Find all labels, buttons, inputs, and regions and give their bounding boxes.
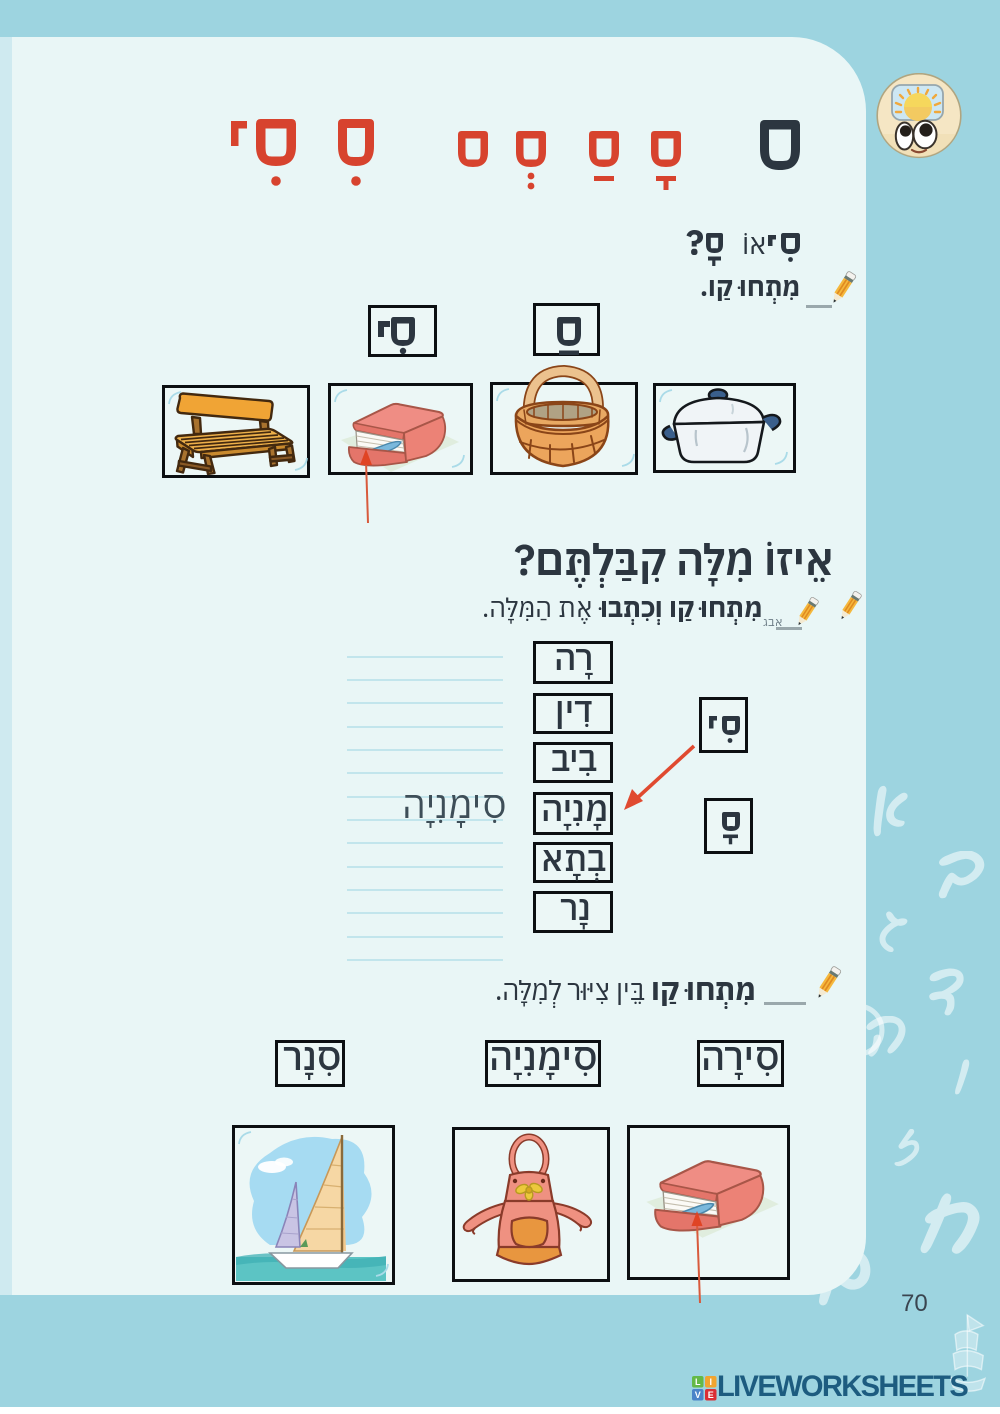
svg-text:E: E <box>708 1390 714 1400</box>
svg-text:I: I <box>709 1377 712 1387</box>
svg-text:L: L <box>695 1377 701 1387</box>
svg-text:V: V <box>695 1390 701 1400</box>
